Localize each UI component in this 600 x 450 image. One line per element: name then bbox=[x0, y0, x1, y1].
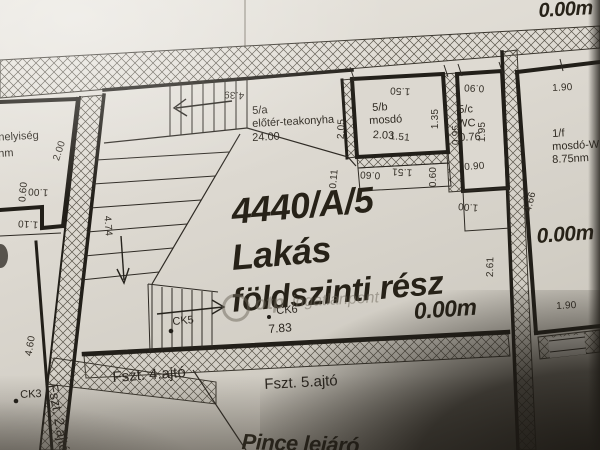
dim-label: 1.95 bbox=[478, 122, 488, 142]
dim-label: 0.60 bbox=[429, 167, 439, 187]
door-fszt2-label: Fszt. 2.ajtó bbox=[46, 383, 72, 450]
dim-label: 4.66 bbox=[524, 191, 539, 213]
unit-number: 4440/A/5 bbox=[230, 182, 375, 230]
dim-label: 1.90 bbox=[552, 83, 573, 94]
unit-elevation-label: 0.00m bbox=[413, 296, 477, 323]
room-5a-area: 24.00 bbox=[252, 132, 280, 144]
dim-label: 0.90 bbox=[464, 162, 485, 173]
door-fszt4-label: Fszt. 4.ajtó bbox=[112, 365, 186, 385]
room-1f-id: 1/f bbox=[552, 128, 565, 140]
dim-label: 4.39 bbox=[224, 88, 245, 99]
dim-label: 1.00 bbox=[28, 185, 49, 196]
dim-label: 0.90 bbox=[464, 81, 485, 92]
dim-label: 2.61 bbox=[486, 257, 496, 277]
room-5b-id: 5/b bbox=[372, 102, 388, 114]
room-5a-id: 5/a bbox=[252, 105, 268, 117]
dim-label: 1.90 bbox=[556, 301, 577, 312]
watermark-brand: otp bbox=[254, 292, 285, 316]
dim-label: 1.50 bbox=[390, 84, 411, 95]
room-topleft-area: nm bbox=[0, 148, 14, 160]
floor-plan-photo: 4440/A/5 Lakás földszinti rész 0.00m 0.0… bbox=[0, 0, 600, 450]
watermark-name: ingatlanpont bbox=[291, 289, 379, 312]
dim-label: 1.51 bbox=[392, 165, 413, 176]
room-5a-name: előtér-teakonyha bbox=[252, 115, 334, 130]
dim-label: 0.11 bbox=[329, 169, 341, 189]
room-5c-id: 5/c bbox=[458, 104, 473, 116]
survey-ck5-label: CK5 bbox=[172, 315, 194, 328]
dim-label: 4.74 bbox=[101, 216, 112, 237]
room-1f-name: mosdó-W bbox=[552, 140, 600, 153]
basement-label: Pince lejáró bbox=[241, 431, 359, 450]
dim-label: 1.35 bbox=[431, 109, 441, 129]
top-right-elevation-label: 0.00m bbox=[538, 0, 593, 21]
dim-label: 0.60 bbox=[360, 168, 381, 179]
dim-label: 0.95 bbox=[452, 125, 462, 145]
room-topleft-name: nhelyiség bbox=[0, 131, 39, 144]
dim-label: 2.05 bbox=[337, 119, 348, 140]
room-5b-name: mosdó bbox=[369, 114, 403, 127]
dim-label: 2.00 bbox=[52, 140, 68, 162]
dim-label: 1.00 bbox=[458, 200, 479, 212]
survey-ck3-label: CK3 bbox=[20, 389, 42, 401]
neighbor-elevation-label: 0.00m bbox=[536, 222, 594, 247]
dim-label: 1.51 bbox=[389, 132, 410, 144]
dim-label: 1.10 bbox=[18, 217, 39, 228]
otp-logo-icon bbox=[221, 293, 250, 322]
room-1f-area: 8.75nm bbox=[552, 153, 589, 166]
dim-label: 4.60 bbox=[24, 335, 37, 357]
door-fszt5-label: Fszt. 5.ajtó bbox=[264, 373, 338, 392]
unit-type-label: Lakás bbox=[230, 231, 332, 276]
